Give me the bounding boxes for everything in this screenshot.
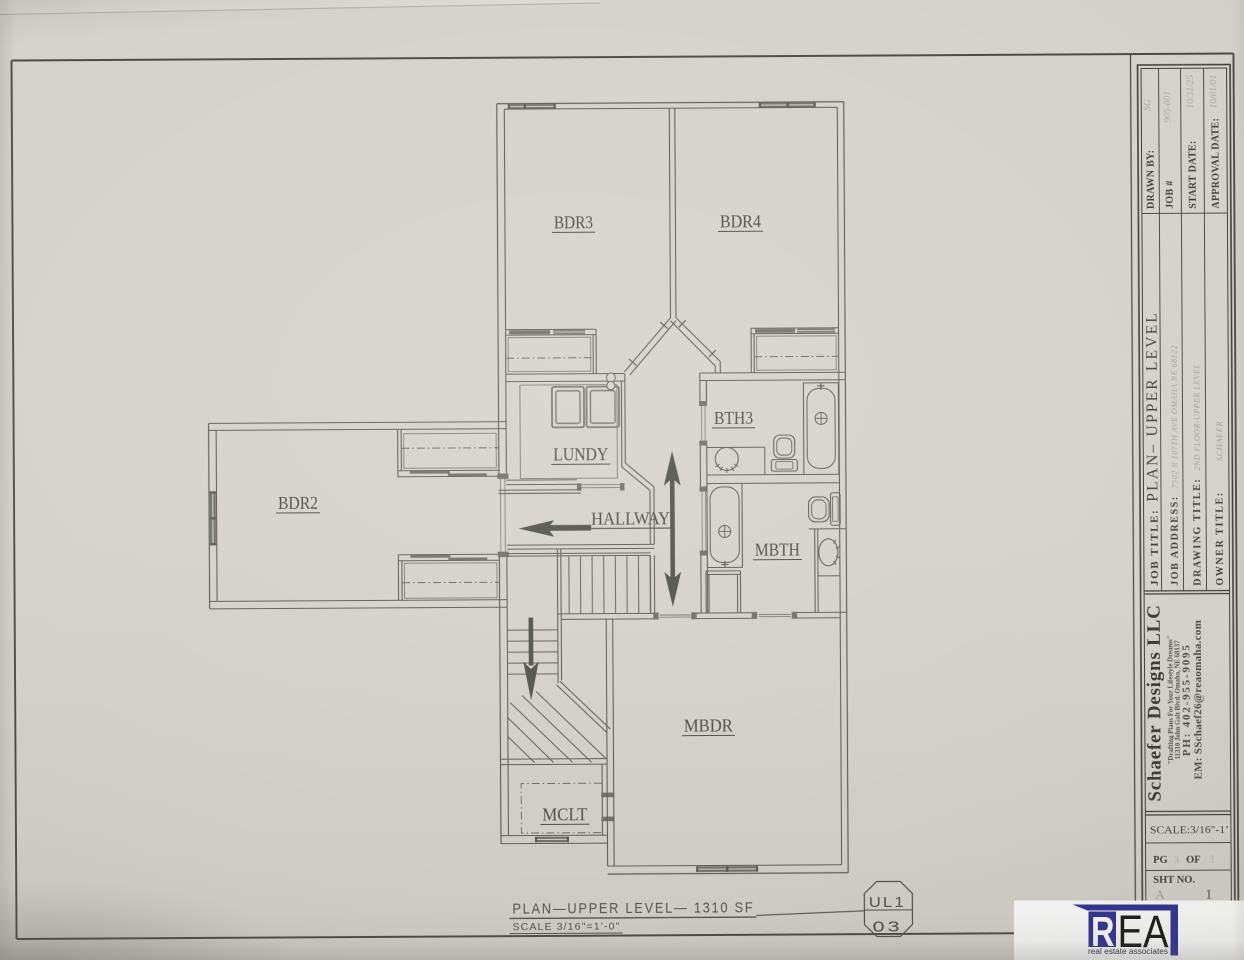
svg-text:BTH3: BTH3 xyxy=(714,408,753,428)
svg-text:EM: SSchaef26@reaomaha.com: EM: SSchaef26@reaomaha.com xyxy=(1192,620,1205,780)
svg-text:SG: SG xyxy=(1143,99,1153,111)
svg-text:LUNDY: LUNDY xyxy=(553,444,608,464)
svg-text:BDR4: BDR4 xyxy=(720,211,761,231)
svg-text:PG: PG xyxy=(1153,855,1168,866)
svg-text:03: 03 xyxy=(872,918,902,935)
svg-text:UL1: UL1 xyxy=(869,894,906,911)
svg-text:A: A xyxy=(1155,887,1165,902)
svg-text:DRAWN BY:: DRAWN BY: xyxy=(1146,150,1157,209)
svg-text:PLAN—UPPER LEVEL— 1310 SF: PLAN—UPPER LEVEL— 1310 SF xyxy=(512,899,754,917)
svg-text:BDR2: BDR2 xyxy=(278,493,318,513)
svg-text:OF: OF xyxy=(1186,855,1201,866)
svg-text:APPROVAL DATE:: APPROVAL DATE: xyxy=(1210,118,1222,209)
svg-text:SHT NO.: SHT NO. xyxy=(1153,875,1195,886)
svg-text:3: 3 xyxy=(1174,855,1179,866)
svg-text:BDR3: BDR3 xyxy=(554,212,593,232)
svg-text:HALLWAY: HALLWAY xyxy=(591,508,670,528)
svg-text:1: 1 xyxy=(1205,888,1212,903)
svg-text:JOB ADDRESS:7502 N 107TH AVE: JOB ADDRESS:7502 N 107TH AVE OMAHA NE 68… xyxy=(1169,345,1181,586)
svg-text:3: 3 xyxy=(1209,855,1214,866)
svg-text:SCALE:3/16"-1’: SCALE:3/16"-1’ xyxy=(1150,824,1229,836)
svg-text:OWNER TITLE:SCHAFER: OWNER TITLE:SCHAFER xyxy=(1214,421,1226,586)
svg-text:real estate associates: real estate associates xyxy=(1088,946,1168,956)
svg-text:MBDR: MBDR xyxy=(684,715,733,735)
svg-text:Schaefer Designs LLC: Schaefer Designs LLC xyxy=(1144,604,1166,801)
svg-text:DRAWING TITLE:2ND FLOOR-UPPER: DRAWING TITLE:2ND FLOOR-UPPER LEVEL xyxy=(1191,364,1203,586)
svg-text:SCALE 3/16"=1’-0": SCALE 3/16"=1’-0" xyxy=(512,922,620,934)
svg-text:START DATE:: START DATE: xyxy=(1187,140,1198,208)
svg-text:10/01/01: 10/01/01 xyxy=(1209,75,1219,109)
svg-text:JOB #: JOB # xyxy=(1165,180,1176,209)
svg-text:MCLT: MCLT xyxy=(542,804,587,824)
svg-text:905-001: 905-001 xyxy=(1163,91,1173,123)
svg-text:JOB TITLE:PLAN– UPPER LEVEL: JOB TITLE:PLAN– UPPER LEVEL xyxy=(1143,311,1162,586)
svg-text:10/31/25: 10/31/25 xyxy=(1186,75,1196,109)
svg-text:MBTH: MBTH xyxy=(755,539,800,559)
